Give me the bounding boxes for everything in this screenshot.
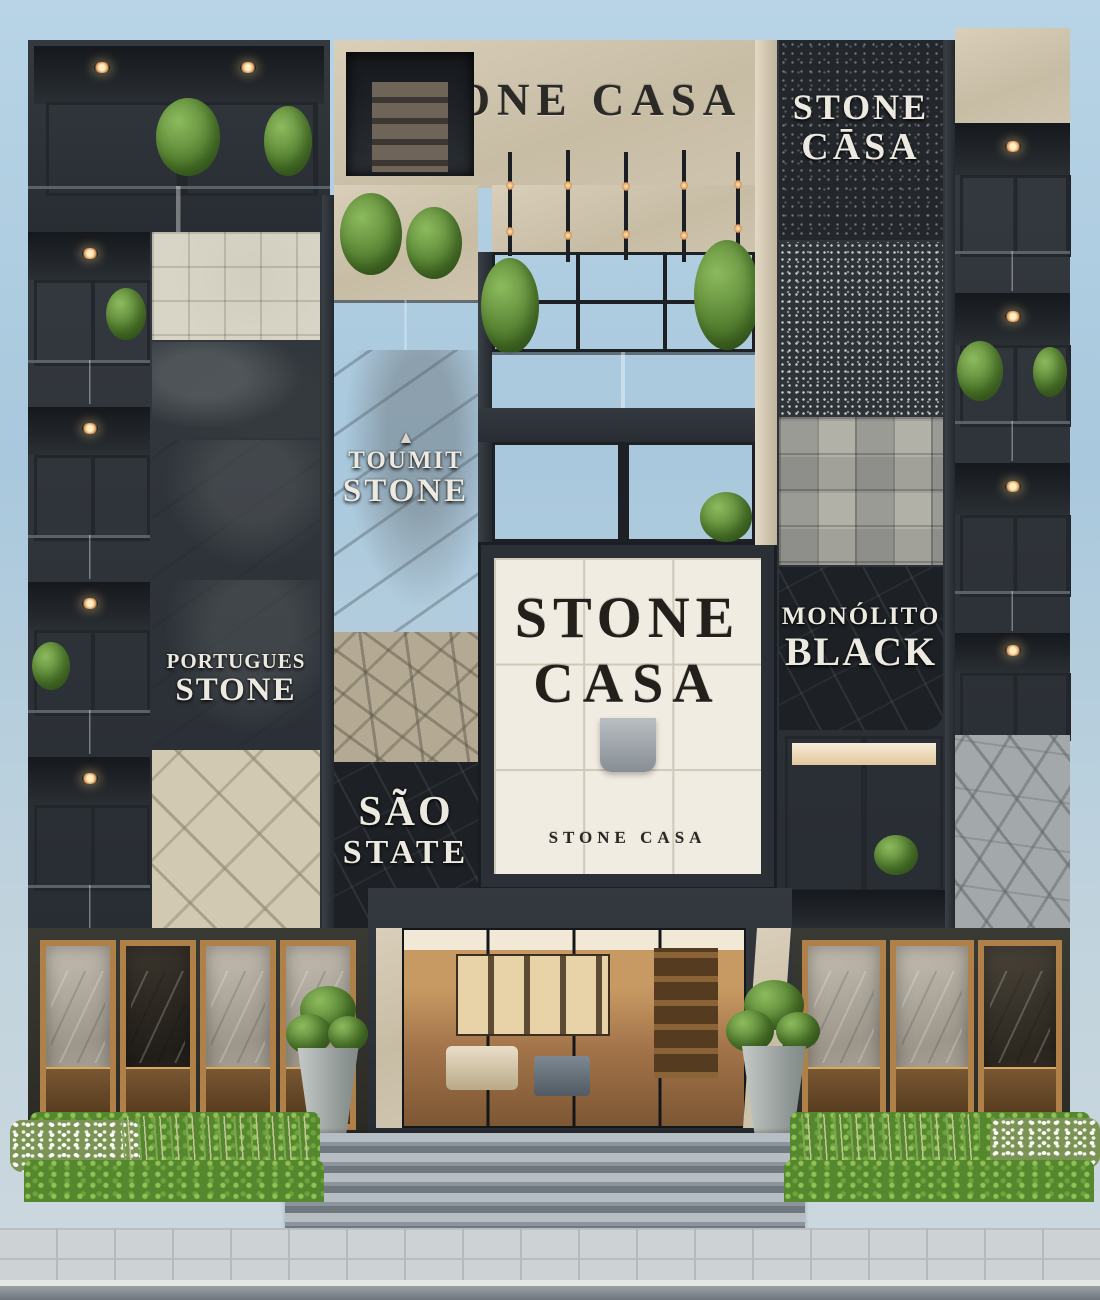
stone-panel-rubble-wall — [955, 735, 1070, 932]
portugues-sign-line1: PORTUGUES — [152, 650, 320, 673]
pendant-rod-light-icon — [736, 152, 740, 252]
display-pendant-object — [600, 718, 656, 772]
ceiling-light-icon — [1005, 481, 1021, 492]
toumit-sign-line1: TOUMIT — [334, 447, 478, 474]
balcony-floor — [955, 633, 1070, 735]
facade-shrub — [694, 240, 760, 350]
balcony-floor — [28, 407, 152, 582]
balcony-floor — [955, 293, 1070, 463]
display-shelves — [654, 948, 718, 1078]
terrace-shrub — [340, 193, 402, 275]
glass-railing — [955, 591, 1070, 631]
right-stone-column: STONE CĀSA MONÓLITO BLACK — [777, 40, 945, 932]
facade-shrub — [481, 258, 539, 354]
ceiling-light-icon — [82, 423, 98, 434]
portugues-sign-line2: STONE — [152, 673, 320, 709]
band — [777, 890, 945, 932]
topiary-ball — [776, 1012, 820, 1050]
showcase-small-sign: STONE CASA — [494, 828, 761, 848]
pendant-rod-light-icon — [624, 152, 628, 260]
pendant-rod-light-icon — [566, 150, 570, 262]
ceiling-light-icon — [1005, 141, 1021, 152]
ceiling-light-icon — [94, 62, 110, 73]
floor-beam — [478, 408, 777, 442]
stone-display-niche — [346, 52, 474, 176]
hedge-front — [24, 1160, 324, 1202]
pendant-rod-light-icon — [682, 150, 686, 262]
balcony-shrub — [32, 642, 70, 690]
showcase-sign-line2: CASA — [494, 652, 761, 716]
left-stone-column: PORTUGUES STONE — [150, 232, 322, 932]
planted-terrace-wall — [334, 185, 478, 303]
right-fascia-band — [955, 28, 1070, 123]
balcony-top-left — [28, 40, 330, 232]
right-garden — [760, 1112, 1100, 1234]
stone-panel-mosaic-cobble — [334, 632, 478, 762]
glass-railing — [955, 421, 1070, 461]
topiary-ball — [328, 1016, 368, 1052]
stone-display-table — [534, 1056, 590, 1096]
interior-plant — [874, 835, 918, 875]
sao-sign-line1: SÃO — [334, 790, 478, 835]
glass-railing — [28, 710, 152, 754]
glass-railing — [334, 300, 478, 350]
window-ceiling-glow — [792, 743, 936, 765]
stone-panel-white-cobble — [152, 232, 320, 340]
hedge-front — [784, 1160, 1094, 1202]
building-facade-scene: PORTUGUES STONE STONE CASA ▲ TOUMIT STON… — [0, 0, 1100, 1300]
stone-panel-mixed-cobble — [779, 417, 943, 565]
glass-railing — [28, 186, 330, 232]
sao-sign-line2: STATE — [334, 835, 478, 872]
showroom-sofa — [446, 1046, 518, 1090]
stone-panel-dark-textured — [152, 440, 320, 578]
sidewalk — [0, 1228, 1100, 1288]
right-top-sign-line1: STONE — [779, 88, 943, 127]
apartment-window — [960, 515, 1071, 597]
balcony-ceiling — [34, 46, 324, 104]
balcony-floor — [28, 232, 152, 407]
showcase-sign-line1: STONE — [494, 584, 761, 651]
balcony-floor — [955, 463, 1070, 633]
stone-casa-granite-panel: STONE CĀSA — [779, 40, 943, 240]
stone-step-display — [372, 82, 448, 172]
showroom-window — [785, 736, 943, 892]
display-window-bay — [40, 940, 116, 1130]
balcony-floor — [28, 582, 152, 757]
terrace-shrub — [406, 207, 462, 279]
apartment-window — [34, 805, 152, 891]
right-storefront — [792, 928, 1070, 1133]
balcony-shrub — [957, 341, 1003, 401]
top-fascia: STONE CASA — [334, 40, 755, 188]
monolito-sign-line1: MONÓLITO — [779, 603, 943, 630]
apartment-window — [960, 673, 1071, 741]
ceiling-light-icon — [82, 598, 98, 609]
beige-pillar — [755, 40, 777, 545]
apartment-window — [960, 175, 1071, 257]
glass-railing — [28, 360, 152, 404]
showcase-window-frame: STONE CASA STONE CASA — [478, 542, 777, 890]
ceiling-light-icon — [1005, 645, 1021, 656]
glass-railing — [28, 885, 152, 929]
display-window-bay — [890, 940, 974, 1130]
toumit-stone-panel: ▲ TOUMIT STONE — [334, 350, 478, 632]
stone-panel-speckled-granite — [779, 242, 943, 415]
showcase-glass: STONE CASA STONE CASA — [494, 558, 761, 874]
facade-shrub — [700, 492, 752, 542]
monolito-sign-line2: BLACK — [779, 630, 943, 673]
ceiling-light-icon — [240, 62, 256, 73]
ceiling-light-icon — [82, 248, 98, 259]
glass-railing — [492, 352, 755, 408]
entrance-glass-doors[interactable] — [402, 928, 746, 1128]
balcony-floor — [28, 757, 152, 932]
left-garden — [0, 1112, 345, 1234]
pendant-rod-light-icon — [508, 152, 512, 256]
facade-pillar — [945, 40, 955, 932]
stone-panel-dark-rough — [152, 342, 320, 438]
left-balcony-strip — [28, 232, 152, 932]
display-window-bay — [120, 940, 196, 1130]
balcony-shrub — [156, 98, 220, 176]
display-window-bay — [978, 940, 1062, 1130]
portugues-stone-panel: PORTUGUES STONE — [152, 580, 320, 748]
triangle-logo-icon: ▲ — [334, 428, 478, 447]
right-top-sign-line2: CĀSA — [779, 127, 943, 168]
framed-stone-gallery — [458, 956, 608, 1034]
apartment-window — [34, 455, 152, 541]
toumit-sign-line2: STONE — [334, 474, 478, 510]
ceiling-light-icon — [1005, 311, 1021, 322]
balcony-shrub — [106, 288, 146, 340]
entrance-steps[interactable] — [285, 1133, 805, 1233]
balcony-shrub — [1033, 347, 1067, 397]
monolito-black-panel: MONÓLITO BLACK — [779, 567, 943, 730]
facade-pillar — [322, 195, 334, 932]
balcony-floor — [955, 123, 1070, 293]
ceiling-light-icon — [82, 773, 98, 784]
balcony-shrub — [264, 106, 312, 176]
right-balcony-strip — [955, 123, 1070, 932]
road — [0, 1286, 1100, 1300]
glass-railing — [28, 535, 152, 579]
topiary-ball — [726, 1010, 774, 1052]
display-window-bay — [200, 940, 276, 1130]
glass-railing — [955, 251, 1070, 291]
stone-panel-diagonal-flagstone — [152, 750, 320, 932]
